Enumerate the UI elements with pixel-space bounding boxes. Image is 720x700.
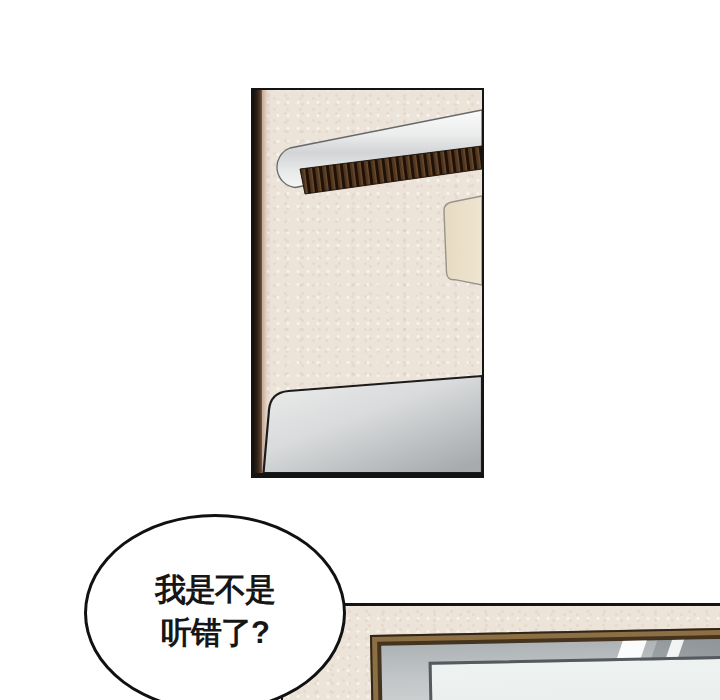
comic-panel-mirror <box>281 603 720 700</box>
bed-headboard <box>264 376 483 473</box>
speech-bubble: 我是不是 听错了? <box>84 514 346 700</box>
speech-line-2: 听错了? <box>155 611 275 654</box>
mirror-reflection <box>429 653 720 700</box>
wall-panel <box>444 196 482 285</box>
comic-panel-bedroom <box>251 88 484 478</box>
bedroom-furniture-drawing <box>253 90 482 473</box>
speech-line-1: 我是不是 <box>155 568 275 611</box>
comic-page: 我是不是 听错了? <box>0 0 720 700</box>
mirror-frame-inner-band <box>377 635 720 700</box>
mirror-frame <box>370 628 720 700</box>
mirror-glass <box>381 639 720 700</box>
speech-bubble-text: 我是不是 听错了? <box>155 568 275 654</box>
